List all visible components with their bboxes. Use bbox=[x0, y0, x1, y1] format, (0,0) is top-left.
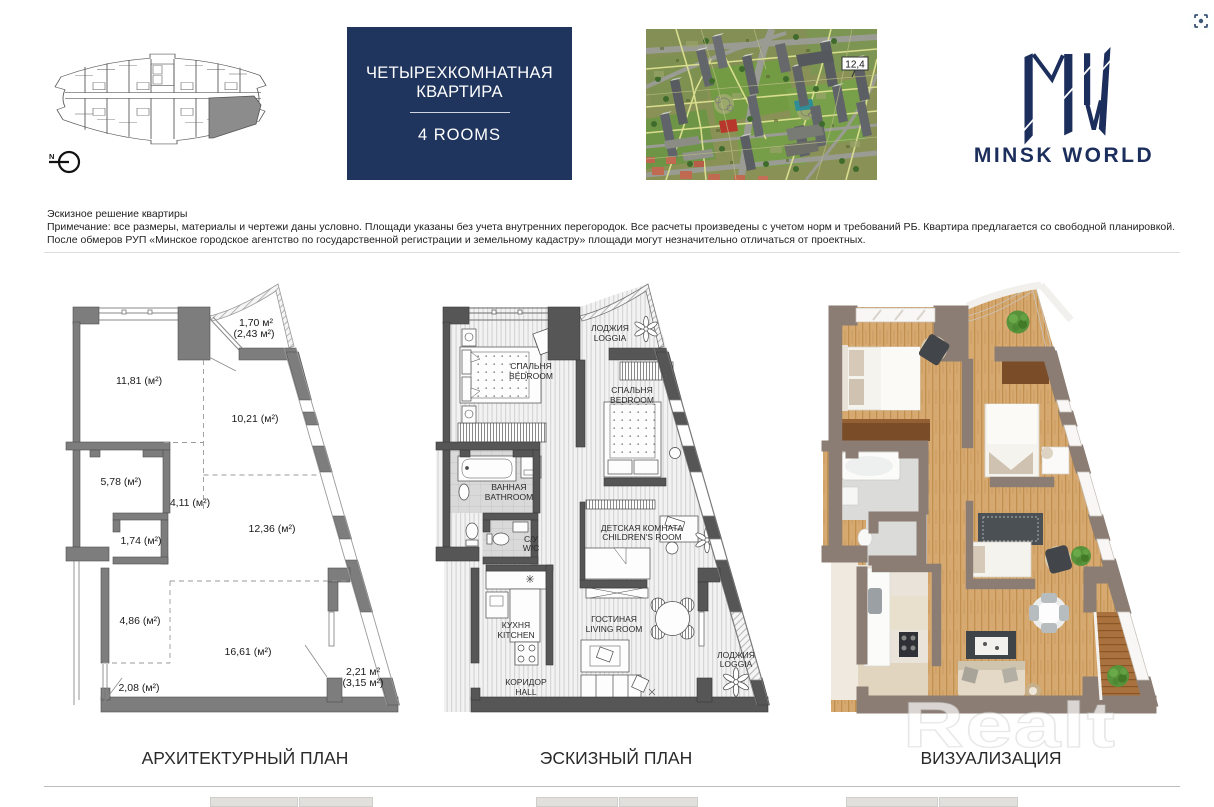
svg-text:HALL: HALL bbox=[515, 687, 537, 697]
svg-text:12,36 (м²): 12,36 (м²) bbox=[249, 523, 296, 535]
svg-text:4,86 (м²): 4,86 (м²) bbox=[119, 615, 160, 627]
svg-text:4,11 (м²): 4,11 (м²) bbox=[170, 497, 210, 509]
svg-text:12,4: 12,4 bbox=[845, 60, 865, 71]
svg-text:W/C: W/C bbox=[523, 543, 540, 553]
svg-text:16,61 (м²): 16,61 (м²) bbox=[225, 646, 272, 658]
svg-text:10,21 (м²): 10,21 (м²) bbox=[232, 413, 279, 425]
svg-text:СПАЛЬНЯ: СПАЛЬНЯ bbox=[611, 385, 653, 395]
svg-text:2,08 (м²): 2,08 (м²) bbox=[118, 682, 159, 694]
svg-text:1,74 (м²): 1,74 (м²) bbox=[120, 535, 161, 547]
svg-text:LOGGIA: LOGGIA bbox=[594, 333, 627, 343]
svg-text:BEDROOM: BEDROOM bbox=[610, 395, 654, 405]
svg-text:ВАННАЯ: ВАННАЯ bbox=[491, 482, 526, 492]
svg-text:LOGGIA: LOGGIA bbox=[720, 659, 753, 669]
svg-text:КОРИДОР: КОРИДОР bbox=[505, 677, 547, 687]
svg-text:5,78 (м²): 5,78 (м²) bbox=[100, 476, 141, 488]
svg-text:(3,15 м²): (3,15 м²) bbox=[342, 677, 383, 689]
svg-text:ГОСТИНАЯ: ГОСТИНАЯ bbox=[591, 614, 637, 624]
svg-text:LIVING ROOM: LIVING ROOM bbox=[586, 624, 643, 634]
svg-text:MINSK WORLD: MINSK WORLD bbox=[974, 144, 1154, 167]
svg-text:(2,43 м²): (2,43 м²) bbox=[233, 328, 274, 340]
svg-text:BATHROOM: BATHROOM bbox=[485, 492, 533, 502]
svg-text:СПАЛЬНЯ: СПАЛЬНЯ bbox=[510, 361, 552, 371]
svg-text:CHILDREN'S ROOM: CHILDREN'S ROOM bbox=[602, 532, 682, 542]
svg-text:KITCHEN: KITCHEN bbox=[497, 630, 534, 640]
svg-text:BEDROOM: BEDROOM bbox=[509, 371, 553, 381]
svg-text:11,81 (м²): 11,81 (м²) bbox=[116, 375, 162, 387]
svg-text:ЛОДЖИЯ: ЛОДЖИЯ bbox=[591, 323, 629, 333]
svg-text:КУХНЯ: КУХНЯ bbox=[502, 620, 530, 630]
svg-text:N: N bbox=[49, 152, 54, 161]
